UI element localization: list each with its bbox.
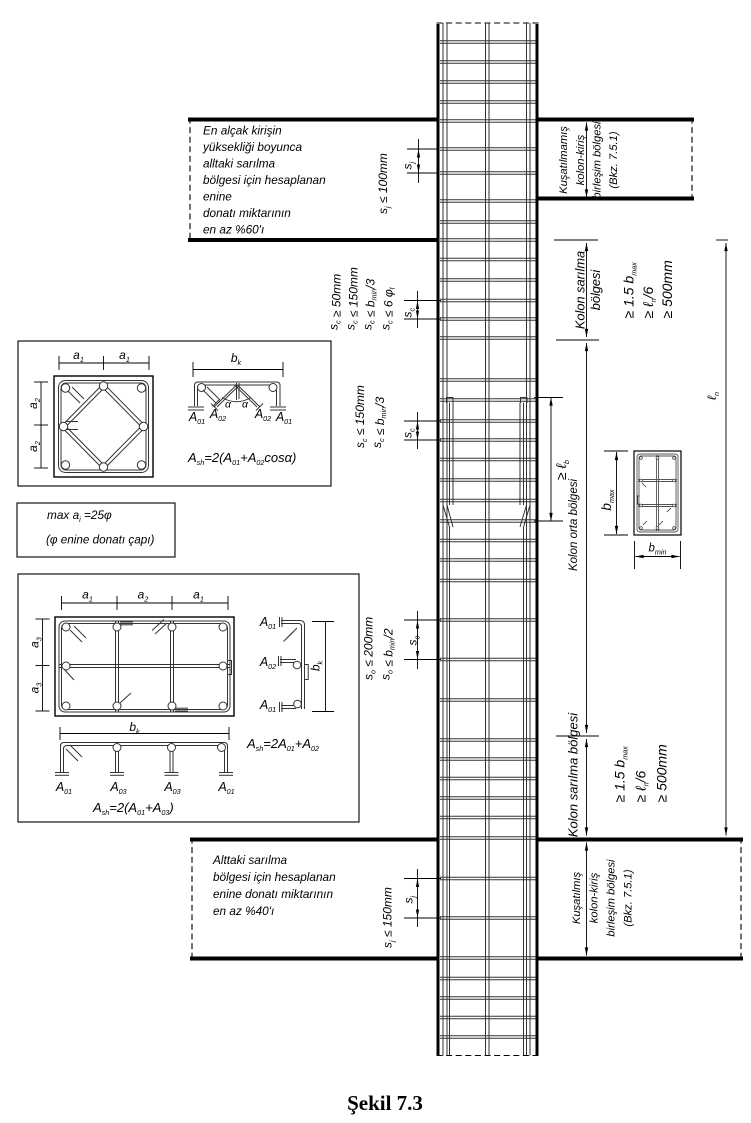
svg-text:sc ≤ bmin/3: sc ≤ bmin/3 (361, 279, 379, 330)
svg-text:bölgesi için hesaplanan: bölgesi için hesaplanan (213, 870, 336, 884)
svg-text:so: so (406, 636, 422, 646)
svg-text:A03: A03 (109, 780, 126, 796)
svg-text:≥ 1.5 bmax: ≥ 1.5 bmax (621, 262, 639, 319)
svg-text:en az %40'ı: en az %40'ı (213, 904, 274, 918)
svg-text:A02: A02 (209, 407, 226, 423)
svg-text:Ash=2A01+A02: Ash=2A01+A02 (246, 736, 319, 753)
svg-text:A01: A01 (259, 698, 276, 714)
svg-text:≥ ℓn/6: ≥ ℓn/6 (633, 771, 651, 803)
svg-text:bk: bk (309, 660, 325, 671)
svg-text:sc ≤ bmin/3: sc ≤ bmin/3 (370, 397, 388, 448)
svg-text:sc ≥ 50mm: sc ≥ 50mm (327, 274, 344, 330)
svg-text:≥ ℓn/6: ≥ ℓn/6 (640, 287, 658, 319)
svg-text:so ≤ bmin/2: so ≤ bmin/2 (379, 628, 397, 680)
svg-text:a1: a1 (119, 348, 130, 364)
svg-text:≥ 1.5 bmax: ≥ 1.5 bmax (612, 746, 630, 803)
svg-text:bk: bk (231, 351, 242, 367)
svg-text:kolon-kiriş: kolon-kiriş (589, 872, 601, 923)
svg-text:≥ 500mm: ≥ 500mm (654, 744, 670, 803)
svg-text:A02: A02 (254, 407, 271, 423)
svg-text:(Bkz. 7.5.1): (Bkz. 7.5.1) (608, 131, 620, 188)
svg-text:a1: a1 (82, 588, 93, 604)
svg-text:sc: sc (401, 428, 417, 438)
svg-text:birleşim bölgesi: birleşim bölgesi (592, 121, 604, 199)
svg-text:Kolon sarılma bölgesi: Kolon sarılma bölgesi (566, 712, 581, 837)
svg-text:sj ≤ 150mm: sj ≤ 150mm (381, 887, 397, 948)
svg-text:Ash=2(A01+A02cosα): Ash=2(A01+A02cosα) (187, 450, 296, 467)
svg-text:En alçak kirişin: En alçak kirişin (203, 124, 282, 138)
svg-text:sj: sj (401, 162, 417, 170)
svg-text:sc ≤ 150mm: sc ≤ 150mm (344, 267, 361, 330)
svg-text:A01: A01 (275, 410, 292, 426)
svg-text:bölgesi: bölgesi (588, 269, 603, 311)
svg-text:max ai =25φ: max ai =25φ (47, 508, 112, 524)
svg-text:Şekil 7.3: Şekil 7.3 (347, 1091, 423, 1115)
svg-text:sc ≤ 150mm: sc ≤ 150mm (353, 385, 369, 448)
svg-text:α: α (242, 399, 249, 411)
svg-text:a2: a2 (138, 588, 149, 604)
svg-text:A01: A01 (217, 780, 234, 796)
svg-text:a2: a2 (26, 398, 42, 409)
svg-text:a3: a3 (28, 683, 44, 694)
svg-text:bölgesi için hesaplanan: bölgesi için hesaplanan (203, 173, 326, 187)
svg-text:bmin: bmin (649, 543, 667, 557)
svg-text:sc ≤ 6 φt: sc ≤ 6 φt (379, 286, 397, 330)
svg-text:A03: A03 (163, 780, 180, 796)
svg-text:donatı miktarının: donatı miktarının (203, 206, 291, 220)
svg-text:(φ enine donatı çapı): (φ enine donatı çapı) (46, 534, 154, 547)
svg-text:Kolon sarılma: Kolon sarılma (573, 251, 588, 329)
svg-text:a2: a2 (26, 441, 42, 452)
svg-text:alltaki sarılma: alltaki sarılma (203, 157, 276, 171)
svg-text:enine: enine (203, 190, 232, 204)
svg-text:≥ 500mm: ≥ 500mm (659, 260, 675, 319)
svg-text:A01: A01 (259, 615, 276, 631)
svg-text:birleşim bölgesi: birleşim bölgesi (606, 859, 618, 937)
svg-text:≥ ℓb: ≥ ℓb (553, 460, 571, 480)
svg-text:Ash=2(A01+A03): Ash=2(A01+A03) (92, 800, 174, 817)
svg-text:sj ≤ 100mm: sj ≤ 100mm (376, 153, 392, 214)
svg-text:a1: a1 (193, 588, 204, 604)
svg-text:enine donatı miktarının: enine donatı miktarının (213, 887, 333, 901)
svg-text:en az %60'ı: en az %60'ı (203, 223, 264, 237)
svg-text:A02: A02 (259, 655, 276, 671)
svg-text:sc: sc (401, 308, 417, 318)
svg-text:Alttaki sarılma: Alttaki sarılma (212, 853, 288, 867)
svg-text:bmax: bmax (599, 489, 616, 511)
svg-text:Kuşatılmış: Kuşatılmış (571, 871, 583, 924)
svg-text:a1: a1 (73, 348, 84, 364)
svg-text:a3: a3 (28, 637, 44, 648)
svg-text:(Bkz. 7.5.1): (Bkz. 7.5.1) (623, 869, 635, 926)
svg-text:yüksekliği boyunca: yüksekliği boyunca (202, 140, 302, 154)
svg-text:Kuşatılmamış: Kuşatılmamış (558, 126, 570, 194)
svg-text:α: α (225, 399, 232, 411)
svg-text:sj: sj (402, 896, 418, 904)
svg-text:so ≤ 200mm: so ≤ 200mm (362, 617, 378, 680)
svg-text:ℓn: ℓn (705, 392, 721, 400)
svg-text:kolon-kiriş: kolon-kiriş (575, 134, 587, 185)
svg-text:Kolon orta bölgesi: Kolon orta bölgesi (568, 479, 580, 572)
svg-text:A01: A01 (188, 410, 205, 426)
svg-text:A01: A01 (55, 780, 72, 796)
